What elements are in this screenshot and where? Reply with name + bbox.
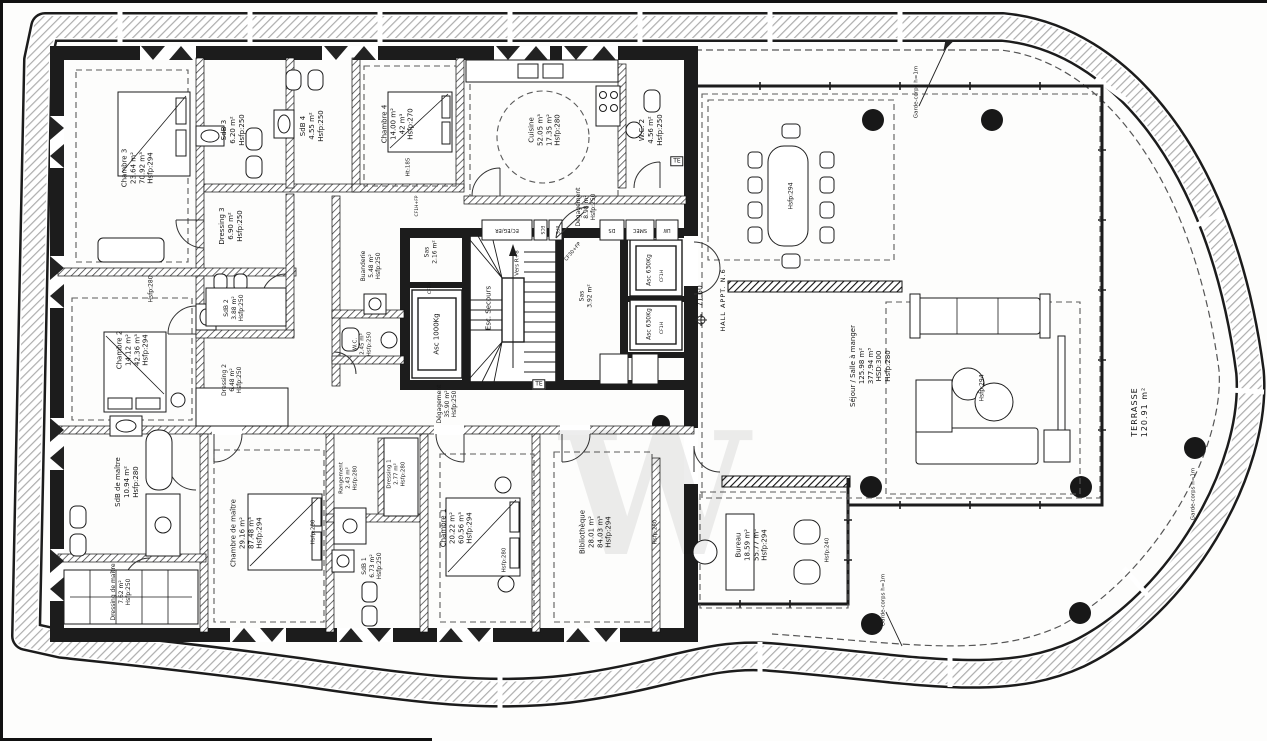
sofa-icon-chambre-3 xyxy=(98,238,164,262)
floor-plan-canvas: W Chambre 323.64 m²70.92 m³Hsfp:294 SdB … xyxy=(0,0,1267,741)
label-sas-1: Sas2.16 m² xyxy=(424,240,439,264)
closet-icons xyxy=(196,288,418,516)
label-chambre-3: Chambre 323.64 m²70.92 m³Hsfp:294 xyxy=(121,149,156,188)
label-chambre-1: Chambre 120.22 m²60.56 m³Hsfp:294 xyxy=(440,509,475,548)
label-sdb-2: SdB 23.88 m²Hsfp:250 xyxy=(223,294,246,321)
annotation-hsfp: Hsfp:280 xyxy=(653,520,660,545)
label-escalier-secours: Esc. Secours xyxy=(485,286,494,330)
label-chambre-4: Chambre 414.00 m²42 m³Hsfp:270 xyxy=(381,105,416,144)
label-degagement-entree: Dégagement8.98 m²Hsfp:250 xyxy=(575,188,598,227)
bathtub-icon xyxy=(146,430,172,490)
annotation-cf1hfp: CF1H+FP xyxy=(415,195,421,216)
annotation-hsfp: Hsfp:294 xyxy=(787,182,795,209)
label-sdb-1: SdB 16.73 m²Hsfp:250 xyxy=(361,552,384,579)
label-sdb-maitre: SdB de maître10.94 m²Hsfp:280 xyxy=(114,457,140,507)
label-sdb-4: SdB 44.55 m²Hsfp:250 xyxy=(299,110,325,142)
sofa-icons-sejour xyxy=(910,294,1070,464)
annotation-ec-eg-er: EC/EG/ER xyxy=(495,227,519,233)
label-rangement: Rangement2.43 m²Hsfp:280 xyxy=(339,462,360,494)
label-ascenseur-630-b: Asc 630Kg xyxy=(645,308,653,340)
annotation-vers-r8: Vers R+8 xyxy=(515,250,522,276)
annotation-te: TE xyxy=(670,156,683,166)
stairs-icon xyxy=(470,236,556,382)
annotation-cf2h: CF2H xyxy=(428,282,434,294)
label-buanderie: Buanderie5.48 m²Hsfp:250 xyxy=(360,251,383,282)
annotation-hsfp: Hsfp:280 xyxy=(311,520,318,545)
label-degagement-nuit: Dégagement35.90 m²Hsfp:250 xyxy=(436,385,459,424)
floor-plan-drawing xyxy=(0,0,1267,741)
annotation-garde-corps: Garde-corps h=1m xyxy=(1191,468,1198,520)
label-sas-2: Sas3.92 m² xyxy=(579,284,594,308)
annotation-ds: DS xyxy=(608,227,615,233)
label-wc-2: W.C. 24.56 m²Hsfp:250 xyxy=(638,114,664,146)
annotation-efs: EFS xyxy=(553,226,559,234)
annotation-smec: SMEC xyxy=(633,227,647,233)
annotation-ecs: ECS xyxy=(538,226,544,235)
label-ascenseur-630-a: Asc 630Kg xyxy=(645,254,653,286)
annotation-cf1h: CF1H xyxy=(660,270,666,282)
annotation-cf1h: CF1H xyxy=(660,322,666,334)
annotation-garde-corps: Garde-corps h=1m xyxy=(914,66,921,118)
label-ascenseur-1000: Asc 1000Kg xyxy=(433,313,442,354)
annotation-lw: LW xyxy=(663,227,670,233)
tv-icon xyxy=(1058,336,1065,430)
label-dressing-1: Dressing 12.77 m²Hsfp:280 xyxy=(387,459,408,488)
label-dressing-maitre: Dressing de maître7.62 m²Hsfp:250 xyxy=(110,563,133,620)
shower-icon-sdb-1 xyxy=(334,508,366,544)
label-hall: HALL APPT. N.6 xyxy=(719,268,727,331)
label-cuisine: Cuisine52.05 m³17.35 m²Hsfp:280 xyxy=(528,114,563,146)
washer-icon xyxy=(364,294,386,314)
label-dressing-3: Dressing 36.90 m²Hsfp:250 xyxy=(218,207,244,244)
label-wc-1: W.C.2.45 m²Hsfp:250 xyxy=(353,332,374,357)
annotation-hsfp: Hsfp:280 xyxy=(147,275,155,302)
label-bibliotheque: Bibliothèque28.01 m²84.03 m³Hsfp:294 xyxy=(579,510,614,554)
annotation-level: 71.60 xyxy=(695,285,704,306)
label-dressing-2: Dressing 26.48 m²Hsfp:250 xyxy=(221,364,244,396)
label-sdb-3: SdB 36.20 m²Hsfp:250 xyxy=(220,114,246,146)
annotation-hsfp: Hsfp:240 xyxy=(825,538,832,563)
label-chambre-maitre: Chambre de maître29.16 m²87.48 m³Hsfp:29… xyxy=(230,499,265,567)
annotation-ht185: Ht:185 xyxy=(406,158,413,177)
annotation-te: TE xyxy=(532,379,545,389)
shower-icon-sdb-maitre xyxy=(146,494,180,556)
label-bureau: Bureau18.59 m²55.77 m³Hsfp:294 xyxy=(735,529,770,561)
watermark: W xyxy=(560,395,751,595)
label-terrasse: TERRASSE120.91 m² xyxy=(1130,387,1150,438)
annotation-hsfp: Hsfp:294 xyxy=(978,374,986,401)
label-chambre-2: Chambre 214.12 m²42.36 m³Hsfp:294 xyxy=(116,331,151,370)
annotation-garde-corps: Garde-corps h=1m xyxy=(881,574,888,626)
garde-corps-leaders xyxy=(886,40,952,646)
label-sejour: Séjour / Salle à manger125.98 m²377.94 m… xyxy=(849,325,893,407)
terrace-inner-dashed xyxy=(695,50,1219,646)
annotation-hsfp: Hsfp:280 xyxy=(502,548,509,573)
